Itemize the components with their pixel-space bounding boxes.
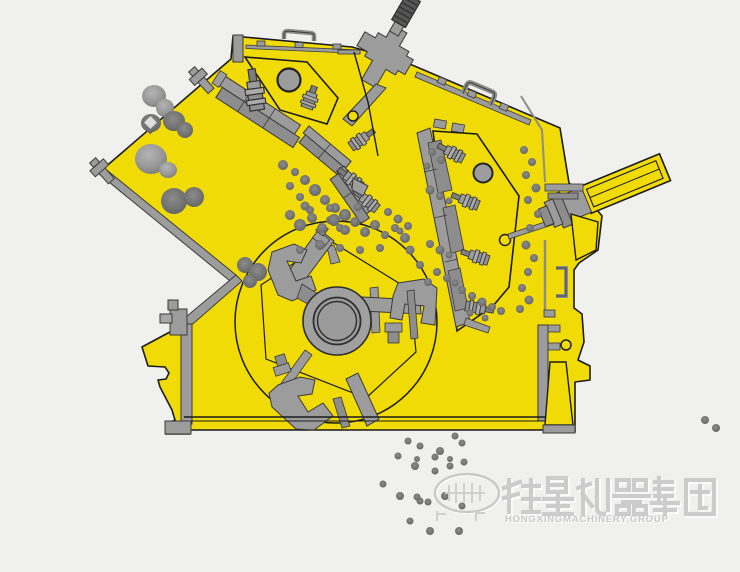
svg-text:HONGXINGMACHINERY.GROUP: HONGXINGMACHINERY.GROUP [505, 514, 669, 525]
